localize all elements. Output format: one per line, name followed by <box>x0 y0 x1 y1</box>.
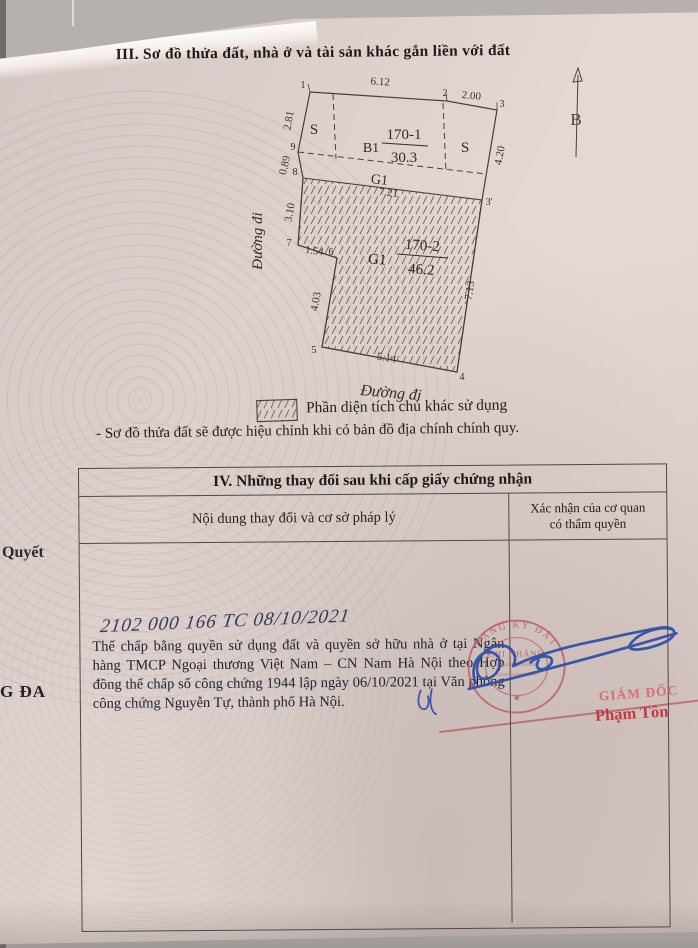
diagram-note: - Sơ đồ thửa đất sẽ được hiệu chỉnh khi … <box>96 418 656 443</box>
dim-1-54: 1.54 <box>304 245 324 259</box>
scanned-land-certificate-page: { "section3": { "title": "III. Sơ đồ thử… <box>0 0 698 948</box>
point-4: 4 <box>460 372 465 383</box>
plot2-number: 170-2 <box>404 237 440 255</box>
dim-7-13: 7.13 <box>463 280 478 301</box>
point-6: 6 <box>329 247 334 258</box>
plot1-number: 170-1 <box>387 127 422 143</box>
section4-header-row: Nội dung thay đổi và cơ sở pháp lý Xác n… <box>79 492 666 544</box>
blue-pen-flourish <box>415 687 441 717</box>
cadastral-diagram: 1 2 3 3' 4 5 6 7 8 9 6.12 2.00 2.81 0.89… <box>240 55 660 405</box>
background-tile-line <box>72 0 74 26</box>
point-7: 7 <box>287 238 292 249</box>
label-b1: B1 <box>363 141 379 156</box>
column-header-content: Nội dung thay đổi và cơ sở pháp lý <box>79 494 508 543</box>
section4-table: IV. Những thay đổi sau khi cấp giấy chứn… <box>78 463 671 932</box>
dim-2-00: 2.00 <box>461 89 482 103</box>
label-s-right: S <box>461 140 469 156</box>
margin-fragment-gda: G ĐA <box>0 682 46 702</box>
plot1-fraction-bar <box>382 143 428 146</box>
label-g1-strip: G1 <box>370 172 389 189</box>
handwritten-registration-number: 2102 000 166 TC 08/10/2021 <box>99 605 352 638</box>
north-arrow: B <box>570 68 582 157</box>
north-letter: B <box>570 110 581 129</box>
dim-5-14: 5.14 <box>376 350 398 365</box>
section4-body: 2102 000 166 TC 08/10/2021 Thế chấp bằng… <box>80 539 670 926</box>
approver-name: Phạm Tôn <box>594 701 669 725</box>
road-label-left: Đường đi <box>250 212 266 270</box>
plot-170-2-hatched-area <box>298 178 482 372</box>
point-8: 8 <box>293 167 298 178</box>
legend-hatch-swatch <box>256 398 299 423</box>
dim-4-03: 4.03 <box>308 290 323 312</box>
plot1-area: 30.3 <box>391 150 417 166</box>
legend-label: Phần diện tích chủ khác sử dụng <box>306 397 507 418</box>
dim-2-81: 2.81 <box>281 110 296 131</box>
dim-3-10: 3.10 <box>282 201 297 223</box>
margin-fragment-quyet: Quyết <box>2 544 44 562</box>
plot2-area: 46.2 <box>408 261 435 279</box>
point-9: 9 <box>291 142 296 153</box>
point-2: 2 <box>443 88 448 99</box>
certificate-paper: III. Sơ đồ thửa đất, nhà ở và tài sản kh… <box>0 0 698 948</box>
point-3: 3 <box>500 99 505 110</box>
point-1: 1 <box>301 80 306 91</box>
confirmation-line2: có thẩm quyền <box>550 516 627 533</box>
dim-4-20: 4.20 <box>492 144 507 166</box>
point-3b: 3' <box>486 197 493 208</box>
dim-0-89: 0.89 <box>277 154 293 176</box>
point-5: 5 <box>312 345 317 356</box>
label-s-left: S <box>310 122 318 138</box>
dim-6-12: 6.12 <box>370 75 390 88</box>
label-g1-plot: G1 <box>368 251 387 268</box>
column-header-confirmation: Xác nhận của cơ quan có thẩm quyền <box>508 492 666 539</box>
confirmation-line1: Xác nhận của cơ quan <box>530 499 645 516</box>
